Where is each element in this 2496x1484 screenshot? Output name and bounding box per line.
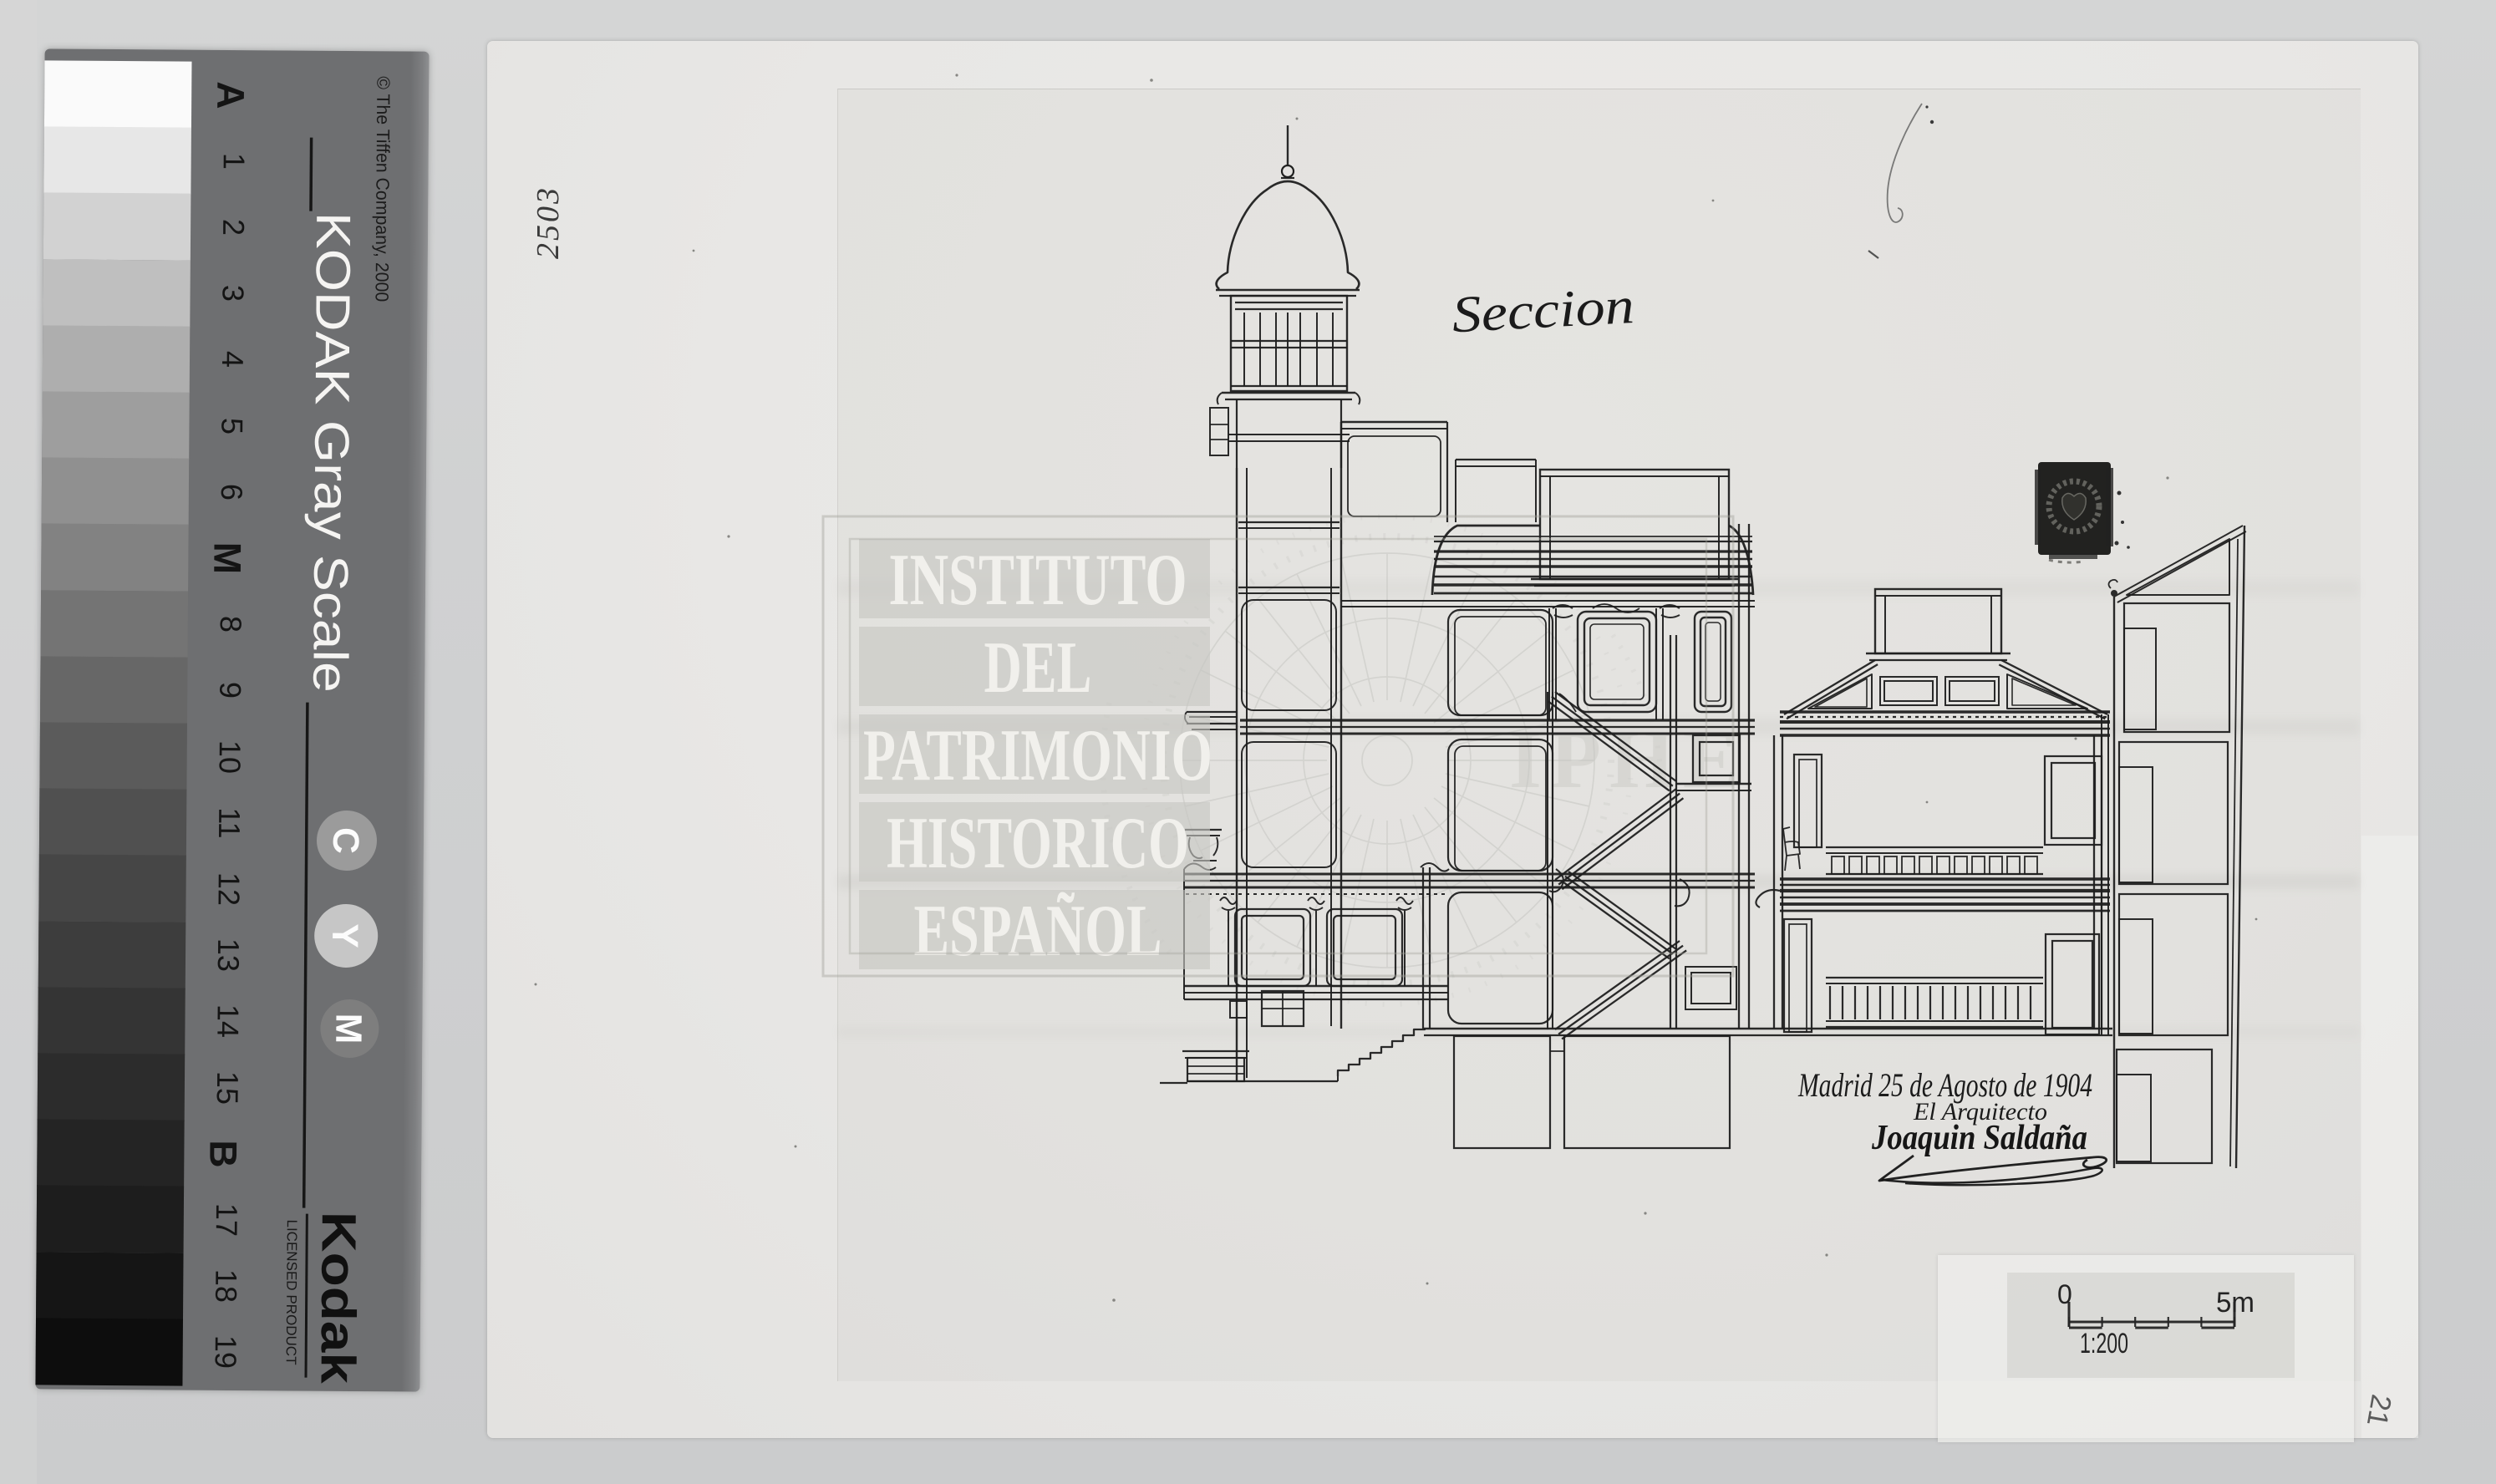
- svg-text:4: 4: [216, 351, 250, 368]
- svg-text:HISTORICO: HISTORICO: [887, 803, 1189, 884]
- svg-text:11: 11: [212, 807, 247, 839]
- svg-text:Y: Y: [324, 923, 365, 948]
- svg-text:18: 18: [209, 1269, 243, 1303]
- svg-text:1: 1: [217, 153, 252, 170]
- svg-text:13: 13: [211, 938, 246, 972]
- svg-text:© The Tiffen Company, 2000: © The Tiffen Company, 2000: [372, 76, 394, 302]
- svg-text:Seccion: Seccion: [1451, 277, 1635, 343]
- svg-text:M: M: [206, 542, 249, 575]
- svg-text:M: M: [328, 1013, 369, 1044]
- svg-text:15: 15: [211, 1071, 245, 1105]
- svg-text:14: 14: [211, 1004, 245, 1038]
- svg-text:B: B: [201, 1140, 245, 1168]
- svg-text:KODAK Gray Scale: KODAK Gray Scale: [302, 212, 360, 693]
- svg-text:Kodak: Kodak: [310, 1212, 365, 1385]
- svg-text:DEL: DEL: [984, 628, 1092, 709]
- svg-text:A: A: [209, 81, 252, 109]
- svg-text:6: 6: [215, 484, 249, 501]
- svg-text:C: C: [325, 827, 366, 854]
- svg-text:2503: 2503: [531, 185, 566, 259]
- svg-text:8: 8: [214, 616, 248, 633]
- svg-text:17: 17: [210, 1203, 244, 1237]
- svg-text:LICENSED PRODUCT: LICENSED PRODUCT: [283, 1219, 300, 1365]
- svg-text:2: 2: [216, 219, 251, 236]
- svg-text:Joaquin Saldaña: Joaquin Saldaña: [1871, 1119, 2087, 1157]
- svg-text:12: 12: [211, 872, 246, 906]
- svg-text:19: 19: [209, 1335, 243, 1369]
- svg-text:21: 21: [2361, 1392, 2397, 1429]
- svg-text:INSTITUTO: INSTITUTO: [889, 540, 1187, 621]
- svg-text:1:200: 1:200: [2080, 1328, 2128, 1359]
- svg-text:ESPAÑOL: ESPAÑOL: [914, 891, 1162, 972]
- svg-text:10: 10: [213, 740, 247, 774]
- svg-text:3: 3: [216, 285, 250, 302]
- svg-text:5: 5: [215, 418, 249, 435]
- svg-text:PATRIMONIO: PATRIMONIO: [863, 715, 1212, 796]
- svg-text:9: 9: [213, 682, 247, 699]
